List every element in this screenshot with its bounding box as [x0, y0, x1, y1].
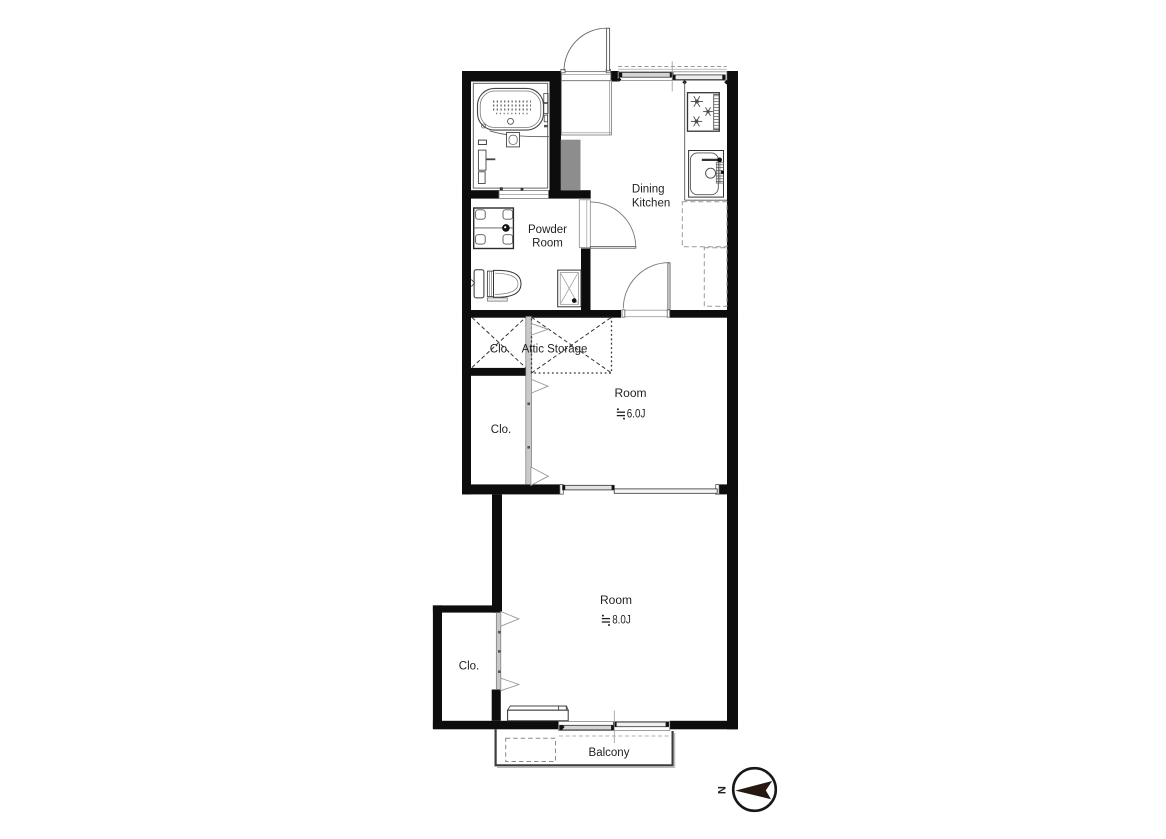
svg-text:Room: Room: [614, 386, 646, 400]
svg-text:Clo.: Clo.: [491, 424, 511, 436]
svg-text:Powder: Powder: [528, 224, 567, 236]
svg-text:Balcony: Balcony: [589, 747, 630, 759]
svg-text:Dining: Dining: [632, 184, 665, 196]
svg-text:Clo.: Clo.: [490, 344, 510, 356]
svg-text:Room: Room: [532, 238, 563, 250]
svg-text:Attic Storage: Attic Storage: [522, 344, 588, 356]
svg-text:Room: Room: [600, 593, 632, 607]
svg-text:Clo.: Clo.: [459, 661, 479, 673]
svg-text:6.0J: 6.0J: [627, 406, 646, 420]
svg-text:8.0J: 8.0J: [612, 613, 631, 627]
svg-text:Kitchen: Kitchen: [632, 198, 670, 210]
svg-text:N: N: [717, 786, 729, 794]
